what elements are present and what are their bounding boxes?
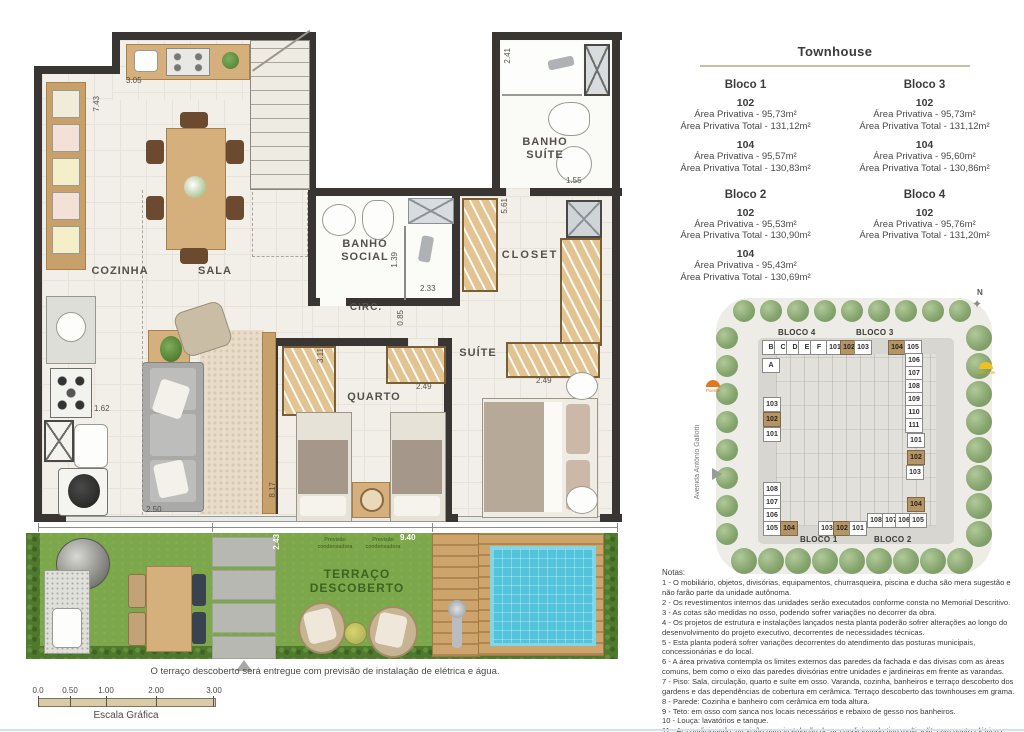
- dim-banho-suite-width: 1.55: [566, 176, 582, 185]
- cabinet-shelf: [52, 90, 80, 118]
- staircase-projection: [252, 192, 308, 257]
- scale-tick: [70, 696, 71, 707]
- unit-number: 104: [660, 139, 831, 151]
- plant-sala: [160, 336, 182, 362]
- dining-chair: [180, 248, 208, 264]
- unit-number: 102: [839, 97, 1010, 109]
- siteplan-unit-105: 105: [763, 521, 781, 536]
- scale-bar-title: Escala Gráfica: [28, 710, 224, 721]
- label-cozinha: COZINHA: [80, 265, 160, 278]
- paver: [212, 636, 276, 659]
- rug: [200, 330, 264, 514]
- siteplan-label-bloco1: BLOCO 1: [800, 535, 838, 544]
- label-closet: CLOSET: [492, 249, 568, 262]
- dim-quarto-width: 3.11: [316, 348, 325, 363]
- unit-area-line: Área Privativa - 95,57m²: [660, 151, 831, 163]
- note-item: 10 - Louça: lavatórios e tanque.: [662, 716, 1020, 726]
- shower-area-suite: [502, 42, 582, 96]
- dim-banho-suite-height: 2.41: [503, 48, 512, 64]
- condenser-note: Previsão condensadora: [360, 537, 406, 550]
- cooktop: [166, 48, 210, 76]
- door-gap: [408, 338, 438, 346]
- suite-nightstand: [566, 372, 598, 400]
- terrace-caption: O terraço descoberto será entregue com p…: [40, 666, 610, 677]
- unit-area-line: Área Privativa Total - 131,12m²: [660, 121, 831, 133]
- terrace-chair: [128, 612, 146, 646]
- toilet-banho-suite: [548, 102, 590, 136]
- dim-kitchen-counter: 1.62: [94, 404, 110, 413]
- dim-tick: [212, 523, 213, 532]
- ceiling-projection: [142, 190, 143, 515]
- note-item: 9 - Teto: em osso com sanca nos locais n…: [662, 707, 1020, 717]
- cabinet-shelf: [52, 226, 80, 254]
- unit-area-line: Área Privativa Total - 130,90m²: [660, 230, 831, 242]
- staircase: [250, 40, 310, 190]
- dim-sala-width: 2.50: [146, 505, 162, 514]
- siteplan-label-bloco4: BLOCO 4: [778, 328, 816, 337]
- paver: [212, 537, 276, 567]
- unit-area-line: Área Privativa - 95,43m²: [660, 260, 831, 272]
- notes-block: Notas: 1 - O mobiliário, objetos, divisó…: [662, 568, 1020, 732]
- bed-blanket: [298, 440, 348, 494]
- dim-banho-social-width: 2.33: [420, 284, 436, 293]
- wall: [612, 32, 620, 522]
- block-name: Bloco 3: [839, 79, 1010, 91]
- double-bed-pillows: [566, 404, 590, 454]
- double-bed-blanket: [484, 402, 544, 512]
- dining-chair: [146, 196, 164, 220]
- paver: [212, 570, 276, 600]
- unit-number: 102: [660, 97, 831, 109]
- wall: [492, 32, 500, 192]
- sun-east-icon: [979, 362, 993, 369]
- cabinet-shelf: [52, 124, 80, 152]
- tree-icon: [760, 300, 782, 322]
- area-panel: Townhouse Bloco 1102Área Privativa - 95,…: [660, 44, 1010, 298]
- toilet-banho-social: [362, 200, 394, 240]
- unit-number: 104: [660, 248, 831, 260]
- street-entry-arrow: [712, 468, 722, 480]
- bed-blanket: [392, 440, 442, 494]
- block-name: Bloco 4: [839, 189, 1010, 201]
- blocks-grid: Bloco 1102Área Privativa - 95,73m²Área P…: [660, 79, 1010, 298]
- unit-area-line: Área Privativa - 95,73m²: [660, 109, 831, 121]
- label-sala: SALA: [180, 265, 250, 278]
- siteplan-label-bloco3: BLOCO 3: [856, 328, 894, 337]
- wall: [308, 188, 622, 196]
- siteplan-unit-103: 103: [854, 340, 872, 355]
- tree-icon: [814, 300, 836, 322]
- siteplan-unit-103: 103: [763, 397, 781, 412]
- tree-icon: [716, 355, 738, 377]
- tree-icon: [895, 300, 917, 322]
- washer-door: [68, 474, 100, 508]
- cabinet-shelf: [52, 158, 80, 186]
- tree-icon: [966, 409, 992, 435]
- scale-bar-rule: [38, 698, 216, 707]
- floorplan-page: S ▸: [0, 0, 1024, 732]
- shaft-closet: [566, 200, 602, 238]
- block-info: Bloco 1102Área Privativa - 95,73m²Área P…: [660, 79, 831, 175]
- note-item: 3 - As cotas são medidas no osso, podend…: [662, 608, 1020, 618]
- tree-icon: [966, 437, 992, 463]
- dim-banho-social-shower: 1.39: [390, 252, 399, 268]
- street-name: Avenida Antônio Gallotti: [694, 425, 701, 499]
- compass-n-label: N: [977, 288, 983, 297]
- label-banho-suite: BANHO SUÍTE: [505, 136, 585, 161]
- condenser-note: Previsão condensadora: [312, 537, 358, 550]
- siteplan-unit-104: 104: [907, 497, 925, 512]
- unit-area-line: Área Privativa Total - 130,83m²: [660, 163, 831, 175]
- cabinet-shelf: [52, 192, 80, 220]
- unit-area-line: Área Privativa Total - 130,86m²: [839, 163, 1010, 175]
- siteplan-unit-102: 102: [907, 450, 925, 465]
- tree-icon: [787, 300, 809, 322]
- pool: [490, 546, 596, 646]
- plant-kitchen: [222, 52, 239, 69]
- tree-icon: [966, 381, 992, 407]
- block-name: Bloco 2: [660, 189, 831, 201]
- note-item: 4 - Os projetos de estrutura e instalaçõ…: [662, 618, 1020, 638]
- unit-area-line: Área Privativa - 95,73m²: [839, 109, 1010, 121]
- block-info: Bloco 3102Área Privativa - 95,73m²Área P…: [839, 79, 1010, 175]
- dim-tick: [38, 523, 39, 532]
- scale-tick: [213, 696, 214, 707]
- note-item: 8 - Parede: Cozinha e banheiro com cerâm…: [662, 697, 1020, 707]
- hedge-left: [26, 533, 40, 659]
- note-item: 2 - Os revestimentos internos das unidad…: [662, 598, 1020, 608]
- sun-west-icon: [706, 380, 720, 387]
- notes-title: Notas:: [662, 568, 1020, 578]
- sun-east-label: Nascente: [972, 370, 1000, 375]
- scale-tick: [106, 696, 107, 707]
- shaft-banho-suite: [584, 44, 610, 96]
- unit-area-line: Área Privativa Total - 131,12m²: [839, 121, 1010, 133]
- kitchen-sink: [56, 312, 86, 342]
- door-gap: [506, 188, 530, 196]
- panel-divider: [700, 65, 970, 67]
- siteplan-unit-101: 101: [849, 521, 867, 536]
- unit-number: 104: [839, 139, 1010, 151]
- sofa-cushion: [150, 414, 196, 456]
- unit-area-line: Área Privativa - 95,60m²: [839, 151, 1010, 163]
- dim-quarto-wardrobe: 2.49: [416, 382, 432, 391]
- terrace-table: [146, 566, 192, 652]
- dim-terrace-depth: 2.43: [272, 534, 281, 550]
- siteplan-unit-105: 105: [909, 513, 927, 528]
- dining-chair: [226, 140, 244, 164]
- unit-area-line: Área Privativa - 95,53m²: [660, 219, 831, 231]
- dim-circ-width: 0.85: [396, 310, 405, 326]
- table-centerpiece: [184, 176, 206, 198]
- tree-icon: [966, 325, 992, 351]
- tree-icon: [868, 300, 890, 322]
- page-bottom-border: [0, 729, 1024, 731]
- dim-suite-wardrobe: 2.49: [536, 376, 552, 385]
- stove: [50, 368, 92, 418]
- label-circ: CIRC.: [336, 302, 396, 314]
- sink-banho-social: [322, 204, 356, 236]
- unit-area-line: Área Privativa - 95,76m²: [839, 219, 1010, 231]
- terrace-chair: [128, 574, 146, 608]
- tree-icon: [949, 300, 971, 322]
- siteplan-unit-A: A: [762, 358, 780, 373]
- dim-left-height: 7.43: [92, 96, 101, 112]
- dim-sala-depth: 8.17: [268, 482, 277, 498]
- label-quarto: QUARTO: [338, 391, 410, 404]
- scale-tick: [156, 696, 157, 707]
- unit-number: 102: [839, 207, 1010, 219]
- dimension-line: [38, 527, 618, 528]
- tree-icon: [966, 493, 992, 519]
- quarto-wardrobe-top: [386, 346, 446, 384]
- unit-area-line: Área Privativa Total - 131,20m²: [839, 230, 1010, 242]
- unit-area-line: Área Privativa Total - 130,69m²: [660, 272, 831, 284]
- block-name: Bloco 1: [660, 79, 831, 91]
- tree-icon: [716, 327, 738, 349]
- siteplan-unit-101: 101: [763, 427, 781, 442]
- siteplan-unit-102: 102: [763, 412, 781, 427]
- siteplan-label-bloco2: BLOCO 2: [874, 535, 912, 544]
- wall: [112, 32, 316, 40]
- tree-icon: [966, 521, 992, 547]
- wall: [38, 66, 120, 74]
- dim-tick: [617, 523, 618, 532]
- scale-tick-label: 0.50: [62, 686, 78, 695]
- siteplan-unit-111: 111: [905, 418, 923, 433]
- dining-chair: [146, 140, 164, 164]
- bed-pillow: [300, 496, 346, 516]
- siteplan-unit-103: 103: [906, 465, 924, 480]
- tree-icon: [716, 495, 738, 517]
- suite-nightstand: [566, 486, 598, 514]
- lounge-side-table: [344, 622, 367, 645]
- sun-west-label: Poente: [700, 388, 726, 393]
- service-shaft: [44, 420, 74, 462]
- terrace-sink: [52, 608, 82, 648]
- paver: [212, 603, 276, 633]
- scale-tick-label: 3.00: [206, 686, 222, 695]
- siteplan-unit-101: 101: [907, 433, 925, 448]
- note-item: 6 - A área privativa contempla os limite…: [662, 657, 1020, 677]
- laundry-tank: [74, 424, 108, 468]
- block-info: Bloco 4102Área Privativa - 95,76m²Área P…: [839, 189, 1010, 285]
- hedge-right: [604, 533, 618, 659]
- dim-suite-wall: 5.61: [500, 198, 509, 214]
- scale-tick: [38, 696, 39, 707]
- dining-chair: [226, 196, 244, 220]
- scale-tick-label: 0.0: [32, 686, 43, 695]
- terrace-bench: [192, 574, 206, 606]
- double-bed-fold: [544, 402, 562, 512]
- tree-icon: [733, 300, 755, 322]
- dining-chair: [180, 112, 208, 128]
- note-item: 1 - O mobiliário, objetos, divisórias, e…: [662, 578, 1020, 598]
- panel-title: Townhouse: [660, 44, 1010, 59]
- kitchen-sink-top: [134, 50, 158, 72]
- outdoor-shower-head: [448, 600, 466, 618]
- wall: [600, 514, 622, 522]
- unit-number: 102: [660, 207, 831, 219]
- closet-wardrobe-left: [462, 198, 498, 292]
- wall: [308, 196, 316, 306]
- tree-icon: [716, 411, 738, 433]
- scale-bar: 0.0 0.50 1.00 2.00 3.00 Escala Gráfica: [28, 686, 248, 726]
- dim-tick: [432, 523, 433, 532]
- tree-icon: [716, 523, 738, 545]
- note-item: 7 - Piso: Sala, circulação, quarto e suí…: [662, 677, 1020, 697]
- shaft-banho-social: [408, 198, 454, 224]
- dim-cozinha-width: 3.05: [126, 76, 142, 85]
- label-suite: SUÍTE: [448, 347, 508, 360]
- wall: [34, 66, 42, 522]
- wall: [492, 32, 622, 40]
- block-info: Bloco 2102Área Privativa - 95,53m²Área P…: [660, 189, 831, 285]
- compass-icon: ✦: [972, 297, 982, 311]
- bed-pillow: [394, 496, 440, 516]
- quarto-wardrobe-left: [282, 346, 336, 416]
- terrace-bench: [192, 612, 206, 644]
- nightstand-decor: [360, 488, 384, 512]
- siteplan-unit-104: 104: [780, 521, 798, 536]
- notes-list: 1 - O mobiliário, objetos, divisórias, e…: [662, 578, 1020, 732]
- label-terraco: TERRAÇO DESCOBERTO: [298, 568, 416, 596]
- tree-icon: [841, 300, 863, 322]
- scale-tick-label: 1.00: [98, 686, 114, 695]
- note-item: 5 - Esta planta poderá sofrer variações …: [662, 638, 1020, 658]
- scale-tick-label: 2.00: [148, 686, 164, 695]
- tree-icon: [922, 300, 944, 322]
- tree-icon: [716, 439, 738, 461]
- tree-icon: [966, 465, 992, 491]
